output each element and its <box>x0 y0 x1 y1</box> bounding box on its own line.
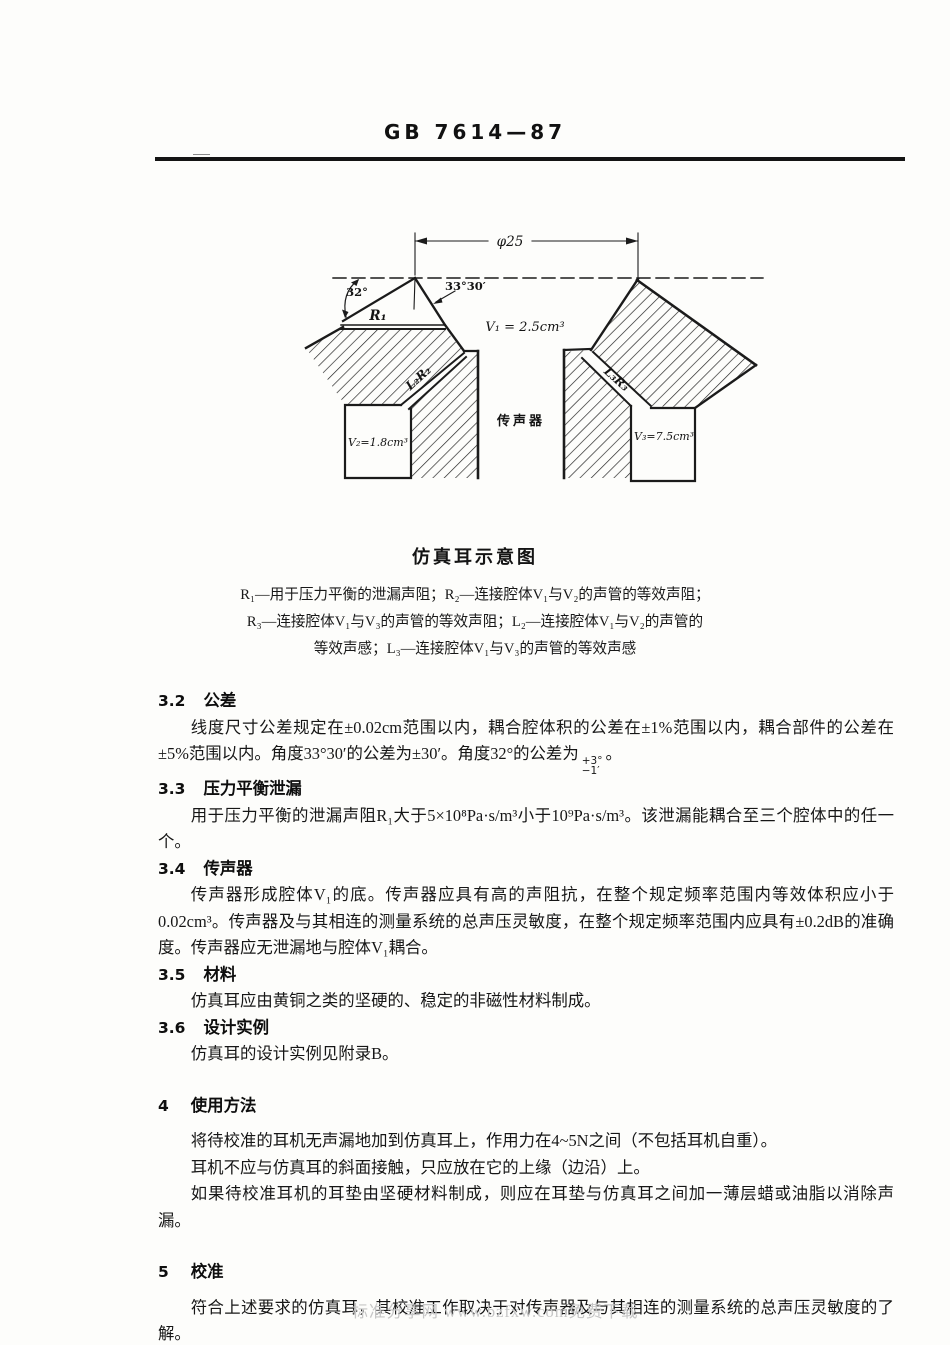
leader-arrow <box>433 298 443 305</box>
paragraph-3-6: 仿真耳的设计实例见附录B。 <box>158 1041 894 1068</box>
cavity-v2-label: V₂=1.8cm³ <box>348 436 408 449</box>
watermark-footer: 标准分享网 www.bzfxw.com免费下载 <box>0 1298 950 1322</box>
paragraph-3-5: 仿真耳应由黄铜之类的坚硬的、稳定的非磁性材料制成。 <box>158 988 894 1015</box>
figure-caption: 仿真耳示意图 <box>0 543 950 569</box>
apex-vertical-line <box>414 278 415 309</box>
v1-bottom-right <box>564 349 590 350</box>
angle-33-30-label: 33°30′ <box>445 279 486 293</box>
header-rule <box>155 157 905 161</box>
section-number: 4 <box>158 1093 169 1120</box>
section-number: 3.4 <box>158 856 185 883</box>
section-heading-3-4: 3.4传声器 <box>158 856 894 883</box>
standard-number: GB 7614—87 <box>0 0 950 144</box>
tolerance-stack: +3°−1′ <box>582 756 603 776</box>
section-title: 设计实例 <box>203 1018 269 1037</box>
section-title: 压力平衡泄漏 <box>203 779 301 798</box>
ear-simulator-diagram: φ25 32° 33°30′ R₁ V₁ = 2.5cm³ L₂R₂ L₃R₃ … <box>278 225 778 507</box>
legend-line: R₃—连接腔体V₁与V₃的声管的等效声阻；L₂—连接腔体V₁与V₂的声管的 <box>0 609 950 636</box>
microphone-label: 传声器 <box>496 413 545 428</box>
paragraph-4-2: 耳机不应与仿真耳的斜面接触，只应放在它的上缘（边沿）上。 <box>158 1155 894 1182</box>
paragraph-text: 线度尺寸公差规定在±0.02cm范围以内，耦合腔体积的公差在±1%范围以内，耦合… <box>158 718 894 764</box>
arc-arrow-bottom <box>342 310 349 319</box>
section-title: 校准 <box>191 1262 224 1281</box>
section-heading-3-2: 3.2公差 <box>158 688 894 715</box>
section-number: 3.6 <box>158 1015 185 1042</box>
paragraph-4-3: 如果待校准耳机的耳垫由坚硬材料制成，则应在耳垫与仿真耳之间加一薄层蜡或油脂以消除… <box>158 1181 894 1234</box>
paragraph-3-3: 用于压力平衡的泄漏声阻R₁大于5×10⁸Pa·s/m³小于10⁹Pa·s/m³。… <box>158 803 894 856</box>
figure-legend: R₁—用于压力平衡的泄漏声阻；R₂—连接腔体V₁与V₂的声管的等效声阻； R₃—… <box>0 582 950 663</box>
section-heading-3-3: 3.3压力平衡泄漏 <box>158 776 894 803</box>
angle-32-label: 32° <box>346 285 368 299</box>
paragraph-3-2: 线度尺寸公差规定在±0.02cm范围以内，耦合腔体积的公差在±1%范围以内，耦合… <box>158 715 894 777</box>
cavity-v3-box <box>631 406 695 481</box>
section-number: 3.5 <box>158 962 185 989</box>
leak-r1-label: R₁ <box>368 308 386 324</box>
ear-simulator-figure: φ25 32° 33°30′ R₁ V₁ = 2.5cm³ L₂R₂ L₃R₃ … <box>0 225 950 663</box>
dim-arrow-left <box>415 238 427 245</box>
document-body: 3.2公差 线度尺寸公差规定在±0.02cm范围以内，耦合腔体积的公差在±1%范… <box>158 688 894 1345</box>
paragraph-text: 。 <box>605 744 621 763</box>
section-heading-3-5: 3.5材料 <box>158 962 894 989</box>
dim-label: φ25 <box>497 234 524 250</box>
right-body <box>591 280 756 408</box>
scan-artifact <box>193 154 210 155</box>
section-number: 5 <box>158 1259 169 1286</box>
section-heading-4: 4使用方法 <box>158 1093 894 1120</box>
paragraph-4-1: 将待校准的耳机无声漏地加到仿真耳上，作用力在4~5N之间（不包括耳机自重）。 <box>158 1128 894 1155</box>
document-page: GB 7614—87 <box>0 0 950 1345</box>
section-title: 传声器 <box>203 859 252 878</box>
cavity-v3-label: V₃=7.5cm³ <box>634 430 694 443</box>
section-number: 3.2 <box>158 688 185 715</box>
cavity-v1-label: V₁ = 2.5cm³ <box>485 320 564 335</box>
section-heading-3-6: 3.6设计实例 <box>158 1015 894 1042</box>
section-title: 公差 <box>203 691 236 710</box>
paragraph-3-4: 传声器形成腔体V₁的底。传声器应具有高的声阻抗，在整个规定频率范围内等效体积应小… <box>158 882 894 962</box>
section-title: 使用方法 <box>191 1096 257 1115</box>
section-title: 材料 <box>203 965 236 984</box>
legend-line: 等效声感；L₃—连接腔体V₁与V₃的声管的等效声感 <box>0 636 950 663</box>
dim-arrow-right <box>626 238 638 245</box>
section-number: 3.3 <box>158 776 185 803</box>
tolerance-lower: −1′ <box>582 766 603 776</box>
legend-line: R₁—用于压力平衡的泄漏声阻；R₂—连接腔体V₁与V₂的声管的等效声阻； <box>0 582 950 609</box>
section-heading-5: 5校准 <box>158 1259 894 1286</box>
